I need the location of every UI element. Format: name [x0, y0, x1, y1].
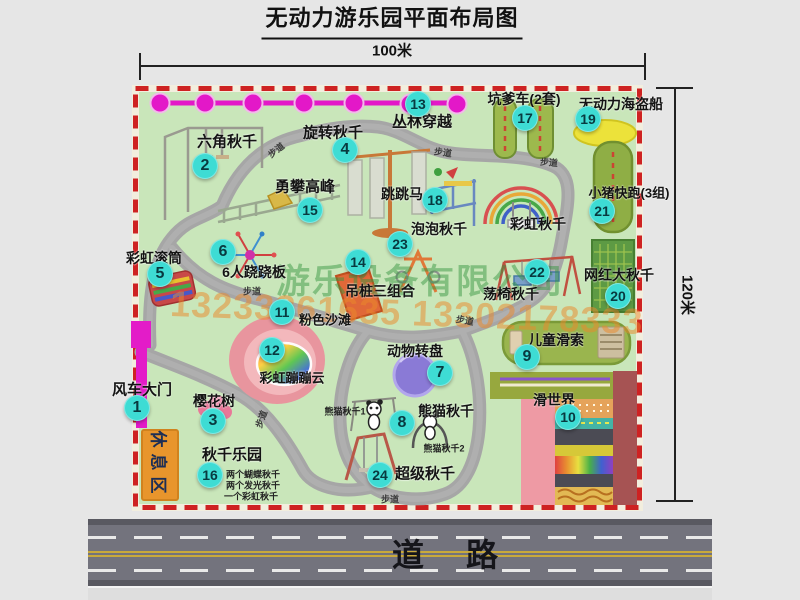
attraction-badge-7: 7	[427, 360, 453, 386]
attraction-label-12: 彩虹蹦蹦云	[259, 368, 324, 387]
attraction-label-11: 粉色沙滩	[299, 310, 351, 329]
attraction-badge-8: 8	[389, 410, 415, 436]
attraction-badge-20: 20	[605, 283, 631, 309]
attraction-label-15: 勇攀高峰	[275, 176, 335, 197]
path-label-6: 步道	[381, 493, 399, 506]
attraction-badge-2: 2	[192, 153, 218, 179]
park-layout-map: 无动力游乐园平面布局图 100米 120米	[0, 0, 800, 600]
attraction-badge-14: 14	[345, 249, 371, 275]
sub-label-4: 一个彩虹秋千	[224, 490, 278, 503]
attraction-label-8: 熊猫秋千	[418, 401, 474, 421]
attraction-badge-5: 5	[147, 261, 173, 287]
attraction-label-4: 旋转秋千	[303, 122, 363, 143]
attraction-label-6: 6人跷跷板	[222, 262, 286, 282]
path-label-0: 步道	[265, 139, 287, 160]
path-label-5: 步道	[455, 312, 475, 328]
attraction-badge-11: 11	[269, 299, 295, 325]
attraction-label-18: 跳跳马	[381, 184, 423, 204]
attraction-badge-9: 9	[514, 344, 540, 370]
sub-label-0: 熊猫秋千1	[324, 405, 365, 418]
extra-label-0: 彩虹秋千	[510, 214, 566, 234]
attraction-badge-13: 13	[405, 91, 431, 117]
attraction-label-22: 荡椅秋千	[483, 284, 539, 304]
attraction-badge-10: 10	[555, 404, 581, 430]
attraction-badge-23: 23	[387, 231, 413, 257]
attraction-badge-15: 15	[297, 197, 323, 223]
path-label-3: 步道	[243, 285, 261, 298]
attraction-badge-1: 1	[124, 395, 150, 421]
path-label-4: 步道	[252, 408, 270, 429]
attraction-badge-17: 17	[512, 105, 538, 131]
rest-area-label: 休息区	[148, 431, 173, 500]
sub-label-1: 熊猫秋千2	[423, 442, 464, 455]
attraction-label-2: 六角秋千	[197, 131, 257, 152]
attraction-badge-21: 21	[589, 198, 615, 224]
attraction-badge-6: 6	[210, 239, 236, 265]
road-label: 道路	[392, 530, 540, 576]
attraction-badge-12: 12	[259, 337, 285, 363]
attraction-label-9: 儿童滑索	[528, 330, 584, 350]
attraction-badge-18: 18	[422, 187, 448, 213]
attraction-label-24: 超级秋千	[395, 463, 455, 484]
path-label-2: 步道	[539, 155, 558, 170]
attraction-badge-19: 19	[575, 106, 601, 132]
attraction-label-20: 网红大秋千	[584, 265, 654, 285]
sidewalk	[88, 586, 712, 600]
path-label-1: 步道	[433, 144, 453, 159]
attraction-label-7: 动物转盘	[387, 341, 443, 361]
road: 道路	[88, 519, 712, 586]
attraction-badge-16: 16	[197, 462, 223, 488]
park-overlay: 休息区 风车大门1六角秋千2樱花树3旋转秋千4彩虹滚筒56人跷跷板6动物转盘7熊…	[0, 0, 800, 600]
attraction-label-14: 吊桩三组合	[345, 281, 415, 301]
attraction-badge-3: 3	[200, 408, 226, 434]
attraction-label-23: 泡泡秋千	[411, 219, 467, 239]
attraction-badge-22: 22	[524, 259, 550, 285]
attraction-badge-24: 24	[367, 462, 393, 488]
attraction-badge-4: 4	[332, 137, 358, 163]
